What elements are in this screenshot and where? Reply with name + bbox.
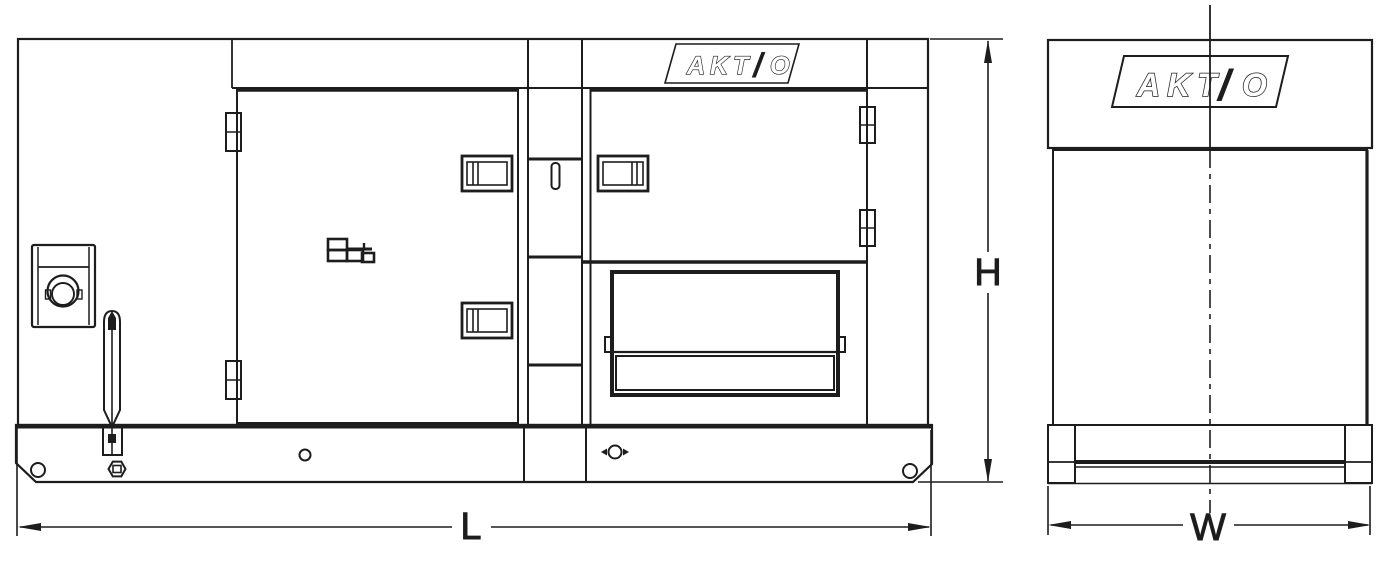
left-door-handle-upper (462, 156, 512, 191)
dimension-height: H (918, 39, 1003, 482)
side-view: AKT / O (1048, 5, 1372, 513)
lifting-hole-icon (903, 464, 917, 478)
arrow-down-icon (984, 459, 992, 482)
key-slot-icon (552, 163, 560, 189)
control-panel-box (32, 245, 95, 327)
front-enclosure-outline (18, 39, 928, 425)
front-view: AKT / O (16, 39, 932, 482)
length-dim-label: L (460, 506, 481, 548)
hex-bolt-icon (109, 462, 126, 477)
dimension-length: L (17, 425, 931, 548)
width-dim-label: W (1190, 507, 1226, 549)
left-door (226, 90, 518, 423)
arrow-left-icon (18, 523, 41, 531)
center-post (528, 159, 582, 365)
right-door (582, 90, 875, 425)
right-door-handle (598, 156, 648, 191)
dimension-width: W (1048, 486, 1371, 549)
door-locking-rod (103, 311, 122, 455)
roof-band-and-seams (232, 39, 928, 425)
lifting-hole-icon (31, 463, 45, 477)
drain-plug-icon (601, 446, 629, 459)
door-label-icon (328, 239, 374, 262)
small-hole-icon (300, 450, 311, 461)
brand-logo-side: AKT / O (1112, 56, 1288, 110)
logo-letters: AKT (686, 52, 753, 80)
drawing-canvas: AKT / O AKT / O (0, 0, 1394, 580)
brand-logo-front: AKT / O (665, 44, 799, 85)
logo-letter-o: O (770, 52, 790, 80)
arrow-right-icon (1348, 521, 1371, 529)
left-door-hinges (226, 113, 241, 399)
arrow-right-icon (908, 523, 931, 531)
logo-letter-o: O (1242, 67, 1267, 103)
louver-panel (605, 272, 845, 395)
genset-canopy-dimension-drawing: AKT / O AKT / O (0, 0, 1394, 580)
arrow-up-icon (984, 40, 992, 63)
height-dim-label: H (974, 252, 1001, 294)
arrow-left-icon (1048, 521, 1071, 529)
base-skid (16, 425, 932, 482)
left-door-handle-lower (462, 303, 512, 338)
